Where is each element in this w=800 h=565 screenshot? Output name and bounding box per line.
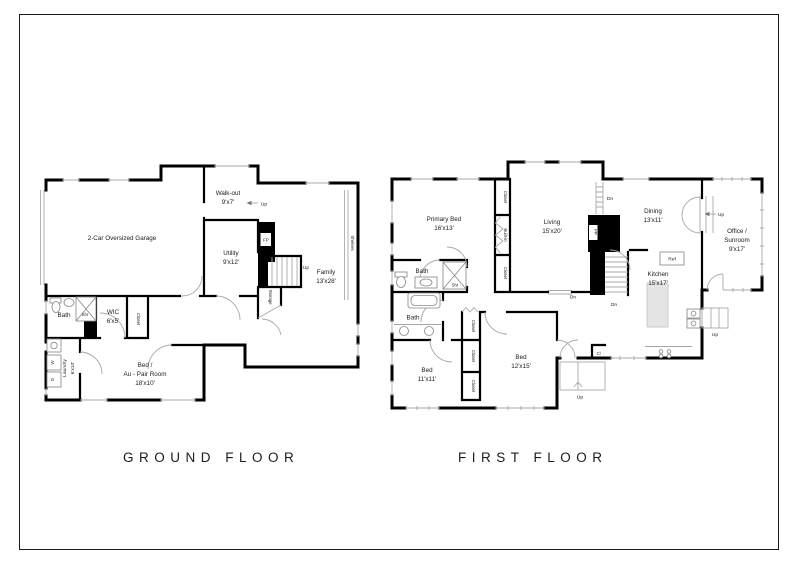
label-cl: Cl (596, 351, 600, 356)
label-aupair-1: Bed / (138, 362, 153, 369)
label-entry-up: Up (718, 212, 725, 218)
label-dining: Dining (644, 208, 662, 215)
label-family: Family (317, 269, 336, 276)
entry-up-arrowhead (705, 212, 710, 216)
ground-exterior-walls (46, 166, 358, 400)
label-bed11-dims: 11'x11' (418, 376, 437, 383)
label-garage: 2-Car Oversized Garage (88, 235, 157, 242)
label-dn-hall: Dn (570, 295, 577, 301)
sink-bowl-icon (691, 321, 696, 326)
label-up-bottom: Up (577, 395, 584, 401)
label-first-bath2: Bath (407, 315, 420, 322)
label-ref: Ref (668, 257, 676, 263)
vanity-sink-icon (420, 279, 432, 286)
label-dn-stairs: Dn (611, 302, 618, 308)
label-office-2: Sunroom (724, 237, 750, 244)
burner-icon (667, 350, 671, 354)
label-shelves: Shelves (350, 235, 355, 250)
walkout-up-arrowhead (247, 201, 252, 206)
label-utility-dims: 9'x12' (223, 259, 239, 266)
label-family-dims: 13'x28' (316, 278, 336, 285)
label-primary-bed-dims: 16'x13' (434, 225, 454, 232)
label-closet-bottom: Closet (503, 267, 508, 280)
label-ground-stairs-up: Up (303, 265, 310, 271)
sink-icon (64, 299, 74, 307)
burner-icon (667, 354, 671, 358)
right-steps-lines (711, 308, 719, 328)
label-wic: WIC (107, 309, 120, 316)
floorplan-drawing: 2-Car Oversized Garage Walk-out 9'x7' Up… (0, 0, 800, 565)
burner-icon (659, 354, 663, 358)
bathtub-inner-icon (411, 296, 437, 306)
ground-stair-wall (258, 252, 268, 288)
label-ground-shr: Shr (82, 312, 89, 317)
label-living-dims: 15'x20' (542, 228, 562, 235)
label-first-shr: Shr (452, 283, 459, 288)
sink-bowl-icon (425, 327, 434, 336)
label-laundry: Laundry (62, 359, 68, 377)
label-first-fp: FP (593, 229, 598, 235)
label-ground-closet: Closet (136, 313, 141, 326)
label-utility: Utility (223, 250, 239, 257)
label-storage: Storage (268, 289, 273, 305)
ground-windows (41, 166, 359, 400)
right-steps (702, 308, 728, 328)
label-aupair-2: Au - Pair Room (123, 371, 166, 378)
label-first-bath1: Bath (416, 268, 429, 275)
label-bed12: Bed (515, 354, 527, 361)
toilet-icon (52, 302, 60, 313)
label-closet-1: Closet (471, 320, 476, 333)
label-wic-dims: 6'x5' (107, 318, 120, 325)
toilet-icon (397, 277, 406, 288)
label-closet-top: Closet (503, 191, 508, 204)
label-up-right: Up (712, 332, 719, 338)
label-built-in: Built-in (503, 228, 508, 242)
first-floor-plan: Primary Bed 16'x13' Closet Built-in Clos… (392, 162, 764, 410)
ground-floor-plan: 2-Car Oversized Garage Walk-out 9'x7' Up… (41, 166, 359, 400)
sink-bowl-icon (691, 311, 696, 316)
first-stair-wall (590, 252, 605, 295)
label-kitchen-dims: 15'x17' (648, 280, 668, 287)
floorplan-page: 2-Car Oversized Garage Walk-out 9'x7' Up… (0, 0, 800, 565)
sink-bowl-icon (400, 327, 409, 336)
label-living: Living (544, 219, 561, 226)
label-laundry-dims: 6'x10' (70, 362, 76, 375)
label-ground-fp: FP (263, 238, 269, 243)
first-fixtures (394, 252, 700, 358)
label-office-1: Office / (727, 228, 747, 235)
first-floor-title: FIRST FLOOR (458, 450, 608, 465)
label-office-dims: 9'x17' (729, 246, 745, 253)
label-dn-top: Dn (607, 196, 614, 202)
label-bed11: Bed (421, 367, 433, 374)
label-kitchen: Kitchen (647, 271, 669, 278)
label-bed12-dims: 12'x15' (511, 363, 531, 370)
kitchen-island (647, 283, 668, 327)
label-dryer: D (50, 378, 55, 381)
ground-floor-title: GROUND FLOOR (123, 450, 299, 465)
label-walkout-dims: 9'x7' (222, 199, 235, 206)
ground-doors (80, 276, 281, 374)
burner-icon (659, 350, 663, 354)
label-aupair-dims: 18'x10' (135, 380, 155, 387)
ground-stairs (272, 257, 297, 286)
label-dining-dims: 13'x11' (643, 217, 662, 224)
label-primary-bed: Primary Bed (427, 216, 462, 223)
label-ground-bath: Bath (58, 312, 71, 319)
label-closet-2: Closet (471, 350, 476, 363)
label-walkout-up: Up (261, 202, 268, 208)
bottom-steps (560, 362, 605, 390)
bottom-steps-caret (574, 362, 582, 390)
laundry-sink-bowl-icon (51, 342, 57, 348)
label-walkout: Walk-out (216, 190, 241, 197)
label-closet-3: Closet (471, 380, 476, 393)
